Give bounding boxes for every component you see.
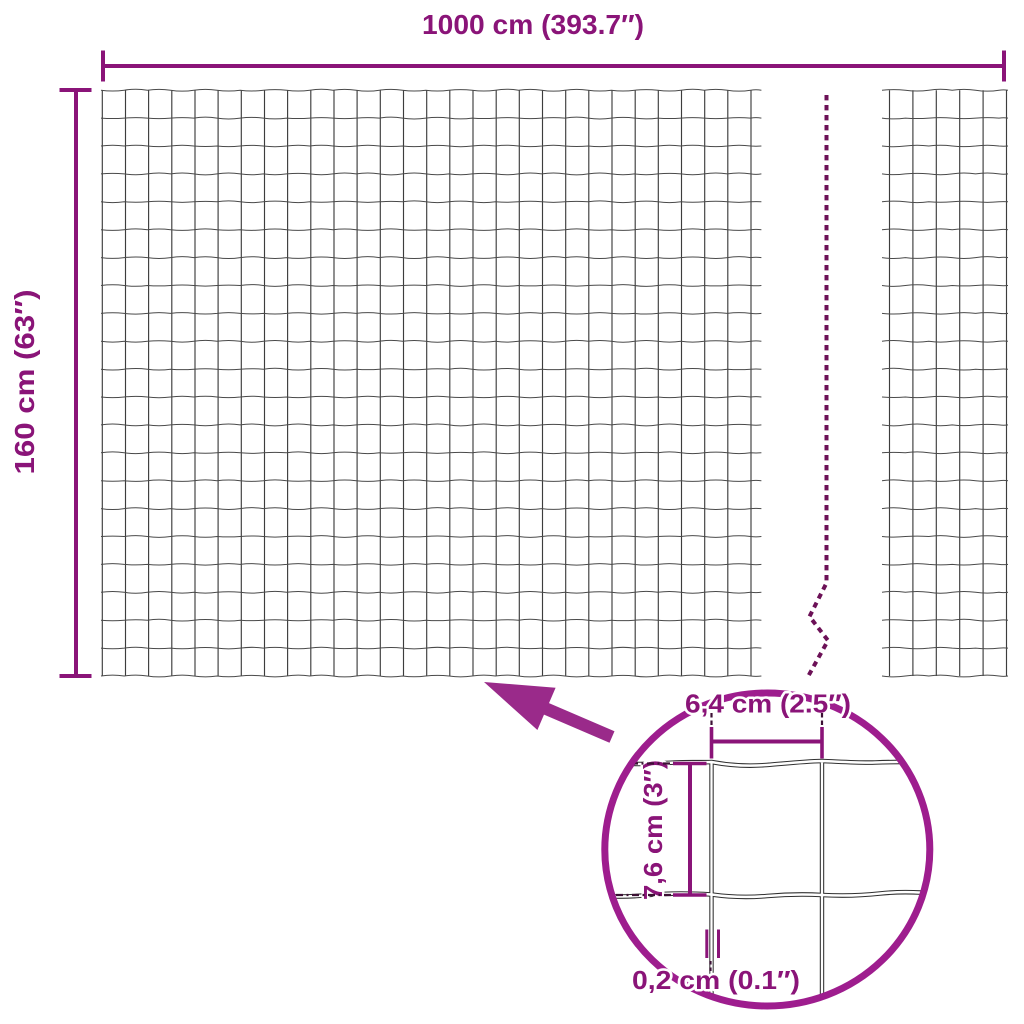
svg-text:0,2 cm (0.1″): 0,2 cm (0.1″) <box>632 965 800 995</box>
svg-text:6,4 cm (2.5″): 6,4 cm (2.5″) <box>685 689 851 719</box>
svg-text:7,6 cm (3″): 7,6 cm (3″) <box>638 760 668 900</box>
svg-text:160 cm (63″): 160 cm (63″) <box>9 290 40 475</box>
svg-text:1000 cm (393.7″): 1000 cm (393.7″) <box>422 9 644 40</box>
